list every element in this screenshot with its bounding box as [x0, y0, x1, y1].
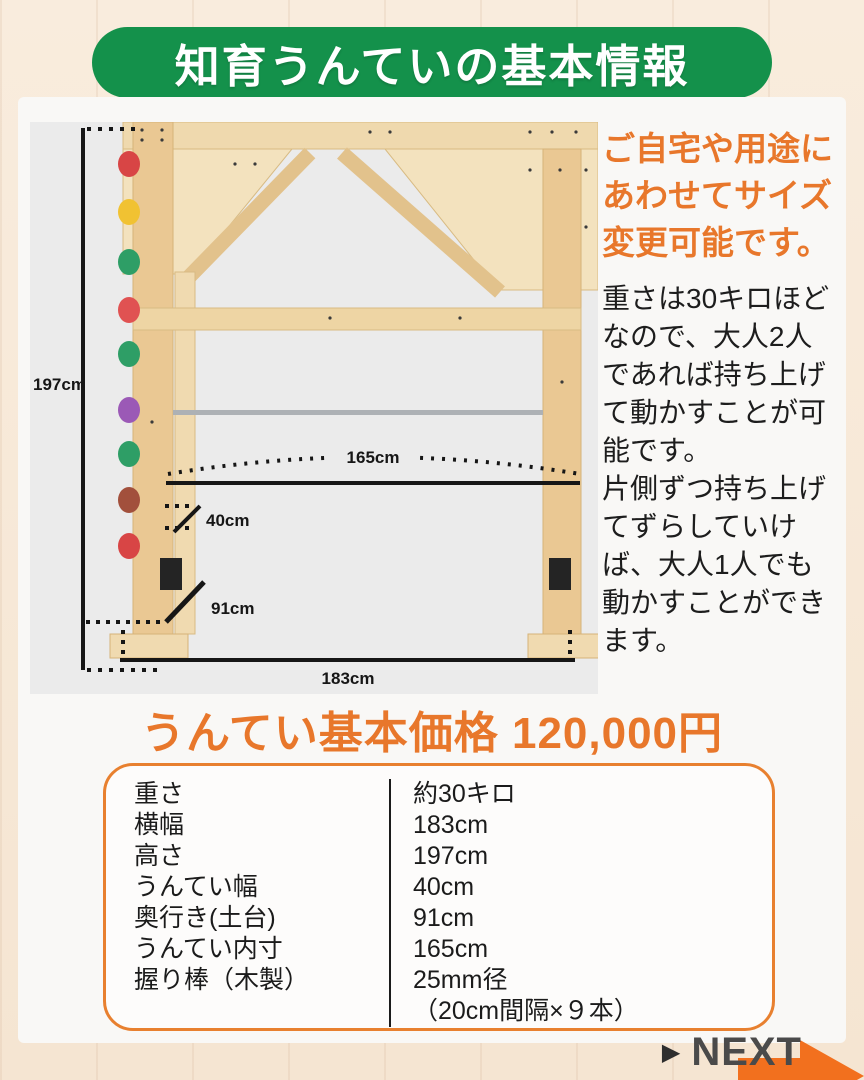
dim-base-depth-label: 91cm: [211, 599, 254, 618]
mid-rail: [133, 308, 581, 330]
description-line: 重さは30キロほど: [602, 280, 840, 318]
description-line: ば、大人1人でも: [602, 546, 840, 584]
highlight-line: 変更可能です。: [602, 219, 840, 266]
dim-height-label: 197cm: [33, 375, 86, 394]
spec-value: 91cm: [389, 903, 772, 934]
right-hinge: [549, 558, 571, 590]
table-row: 奥行き(土台) 91cm: [106, 903, 772, 934]
header-banner: 知育うんていの基本情報: [92, 27, 772, 98]
dim-inner-width-label: 165cm: [347, 448, 400, 467]
price-heading: うんてい基本価格 120,000円: [18, 697, 846, 761]
table-row: 横幅 183cm: [106, 810, 772, 841]
next-pointer-icon: ▶: [662, 1033, 681, 1073]
spec-label: 握り棒（木製）: [106, 965, 389, 1027]
spec-value-line2: （20cm間隔×９本）: [413, 996, 772, 1027]
table-row: うんてい内寸 165cm: [106, 934, 772, 965]
info-card: 197cm 165cm 40cm 91cm 183cm ご自宅や用途に あわせて…: [18, 97, 846, 1043]
climbing-holds: [118, 151, 140, 559]
next-button[interactable]: ▶ NEXT: [644, 1030, 864, 1080]
page-title: 知育うんていの基本情報: [175, 30, 690, 95]
right-foot: [528, 634, 598, 658]
next-label-wrap: ▶ NEXT: [662, 1030, 802, 1075]
spec-label: うんてい内寸: [106, 934, 389, 965]
spec-label: うんてい幅: [106, 872, 389, 903]
dim-untei-width-label: 40cm: [206, 511, 249, 530]
spec-table: 重さ 約30キロ 横幅 183cm 高さ 197cm うんてい幅 40cm 奥行…: [103, 763, 775, 1031]
description-line: なので、大人2人: [602, 318, 840, 356]
table-row: うんてい幅 40cm: [106, 872, 772, 903]
description-line: 片側ずつ持ち上げ: [602, 470, 840, 508]
spec-value: 165cm: [389, 934, 772, 965]
size-diagram-panel: 197cm 165cm 40cm 91cm 183cm: [30, 122, 598, 694]
description-line: てずらしていけ: [602, 508, 840, 546]
left-foot: [110, 634, 188, 658]
spec-value: 約30キロ: [389, 779, 772, 810]
highlight-paragraph: ご自宅や用途に あわせてサイズ 変更可能です。: [602, 125, 840, 266]
spec-value-line1: 25mm径: [413, 965, 772, 996]
description-line: ます。: [602, 622, 840, 660]
spec-value: 25mm径 （20cm間隔×９本）: [389, 965, 772, 1027]
spec-label: 横幅: [106, 810, 389, 841]
spec-label: 奥行き(土台): [106, 903, 389, 934]
dim-total-width-label: 183cm: [322, 669, 375, 688]
spec-value: 183cm: [389, 810, 772, 841]
spec-value: 40cm: [389, 872, 772, 903]
monkey-bar-illustration: 197cm 165cm 40cm 91cm 183cm: [30, 122, 598, 694]
left-post: [133, 122, 173, 634]
table-row: 握り棒（木製） 25mm径 （20cm間隔×９本）: [106, 965, 772, 1027]
metal-bar: [173, 410, 543, 415]
description-line: 動かすことができ: [602, 584, 840, 622]
info-column: ご自宅や用途に あわせてサイズ 変更可能です。 重さは30キロほど なので、大人…: [602, 125, 840, 660]
highlight-line: ご自宅や用途に: [602, 125, 840, 172]
spec-value: 197cm: [389, 841, 772, 872]
description-line: て動かすことが可: [602, 394, 840, 432]
table-row: 高さ 197cm: [106, 841, 772, 872]
highlight-line: あわせてサイズ: [602, 172, 840, 219]
left-hinge: [160, 558, 182, 590]
description-paragraph: 重さは30キロほど なので、大人2人 であれば持ち上げ て動かすことが可 能です…: [602, 280, 840, 660]
table-row: 重さ 約30キロ: [106, 779, 772, 810]
spec-label: 重さ: [106, 779, 389, 810]
spec-label: 高さ: [106, 841, 389, 872]
page-background: { "header": { "title": "知育うんていの基本情報" }, …: [0, 0, 864, 1080]
description-line: 能です。: [602, 432, 840, 470]
description-line: であれば持ち上げ: [602, 356, 840, 394]
next-label: NEXT: [691, 1030, 802, 1075]
